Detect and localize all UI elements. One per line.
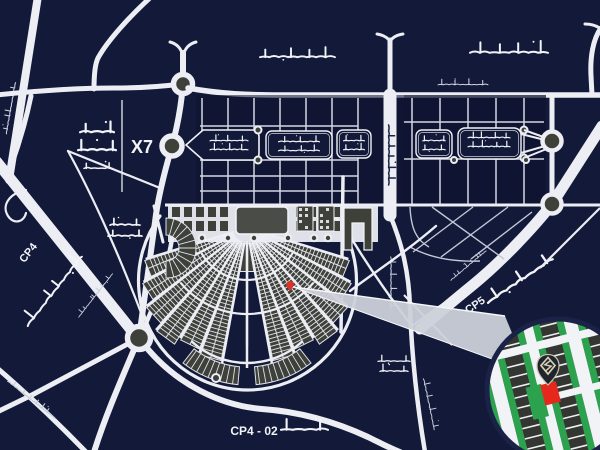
svg-text:CP4 - 02: CP4 - 02 [230, 424, 278, 438]
svg-text:X7: X7 [131, 137, 153, 157]
